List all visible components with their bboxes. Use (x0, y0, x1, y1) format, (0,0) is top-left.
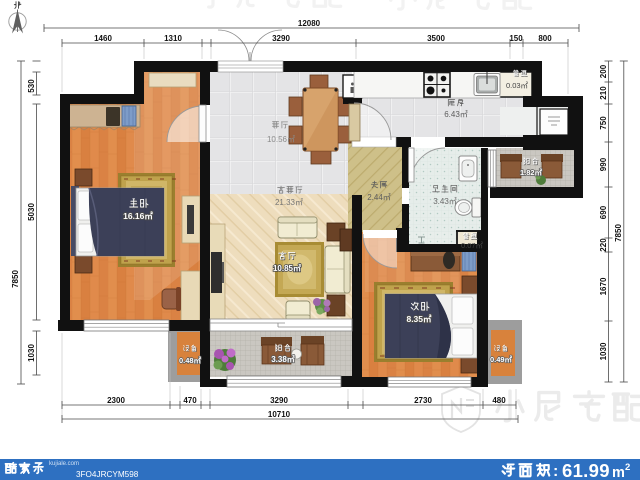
svg-text:690: 690 (599, 205, 608, 219)
svg-text:1030: 1030 (599, 342, 608, 360)
svg-text:m: m (612, 465, 625, 480)
svg-text:2.44㎡: 2.44㎡ (367, 193, 391, 202)
svg-text:8.35㎡: 8.35㎡ (406, 314, 432, 324)
svg-text:kujiale.com: kujiale.com (49, 461, 79, 467)
svg-text:7850: 7850 (614, 224, 623, 242)
svg-text:480: 480 (492, 396, 506, 405)
svg-text:16.16㎡: 16.16㎡ (123, 211, 153, 221)
svg-text:1.82㎡: 1.82㎡ (520, 167, 543, 177)
svg-text:0.48㎡: 0.48㎡ (179, 355, 202, 365)
svg-text:200: 200 (599, 64, 608, 78)
svg-text:750: 750 (599, 116, 608, 130)
svg-text:12080: 12080 (298, 19, 321, 28)
svg-text:1310: 1310 (164, 34, 182, 43)
svg-text:10710: 10710 (268, 410, 291, 419)
svg-text::: : (553, 463, 558, 480)
svg-text:10.85㎡: 10.85㎡ (273, 263, 301, 273)
svg-text:3FO4JRCYM598: 3FO4JRCYM598 (76, 470, 139, 479)
svg-text:1460: 1460 (94, 34, 112, 43)
svg-text:2: 2 (625, 462, 630, 473)
svg-text:530: 530 (27, 79, 36, 93)
svg-text:3500: 3500 (427, 34, 445, 43)
svg-text:990: 990 (599, 157, 608, 171)
svg-text:3.43㎡: 3.43㎡ (433, 197, 457, 206)
svg-text:220: 220 (599, 238, 608, 252)
svg-text:7850: 7850 (11, 270, 20, 288)
svg-text:0.07㎡: 0.07㎡ (461, 241, 484, 250)
svg-text:10.56㎡: 10.56㎡ (267, 135, 295, 144)
svg-text:470: 470 (183, 396, 197, 405)
svg-text:2300: 2300 (107, 396, 125, 405)
svg-text:150: 150 (509, 34, 523, 43)
svg-text:210: 210 (599, 86, 608, 100)
svg-text:2730: 2730 (414, 396, 432, 405)
svg-text:0.49㎡: 0.49㎡ (490, 354, 513, 364)
svg-text:3290: 3290 (270, 396, 288, 405)
svg-text:3.38㎡: 3.38㎡ (271, 354, 295, 364)
svg-text:5030: 5030 (27, 203, 36, 221)
svg-text:6.43㎡: 6.43㎡ (444, 110, 468, 119)
svg-text:0.03㎡: 0.03㎡ (506, 81, 529, 90)
svg-text:1670: 1670 (599, 277, 608, 295)
svg-text:61.99: 61.99 (562, 460, 610, 480)
svg-text:21.33㎡: 21.33㎡ (275, 198, 303, 207)
svg-text:1030: 1030 (27, 344, 36, 362)
svg-text:3290: 3290 (272, 34, 290, 43)
svg-text:800: 800 (538, 34, 552, 43)
